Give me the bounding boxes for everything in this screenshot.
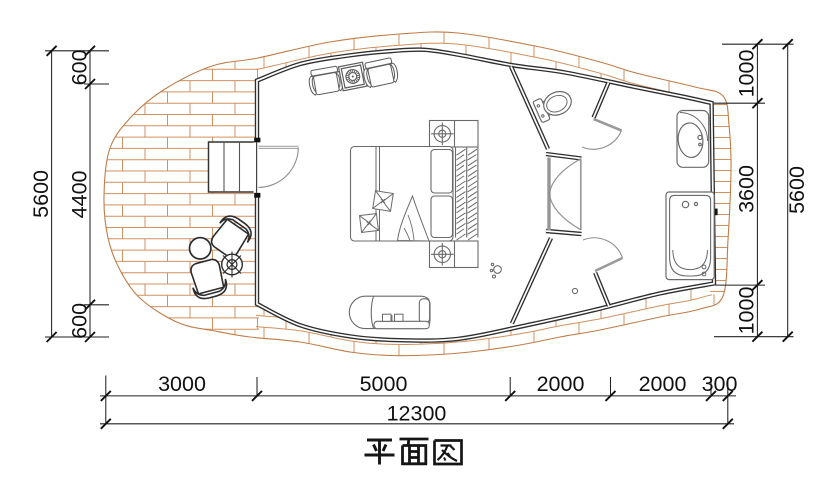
svg-text:3600: 3600 (735, 165, 759, 213)
svg-text:4400: 4400 (68, 170, 92, 218)
svg-text:300: 300 (702, 372, 738, 396)
svg-text:3000: 3000 (158, 372, 206, 396)
svg-text:5600: 5600 (785, 166, 809, 214)
svg-text:5600: 5600 (29, 170, 53, 218)
svg-text:600: 600 (68, 303, 92, 339)
svg-text:2000: 2000 (537, 372, 585, 396)
svg-text:2000: 2000 (639, 372, 687, 396)
svg-text:600: 600 (68, 49, 92, 85)
svg-text:1000: 1000 (735, 287, 759, 335)
svg-text:12300: 12300 (387, 401, 447, 425)
svg-text:5000: 5000 (360, 372, 408, 396)
svg-text:1000: 1000 (735, 50, 759, 98)
